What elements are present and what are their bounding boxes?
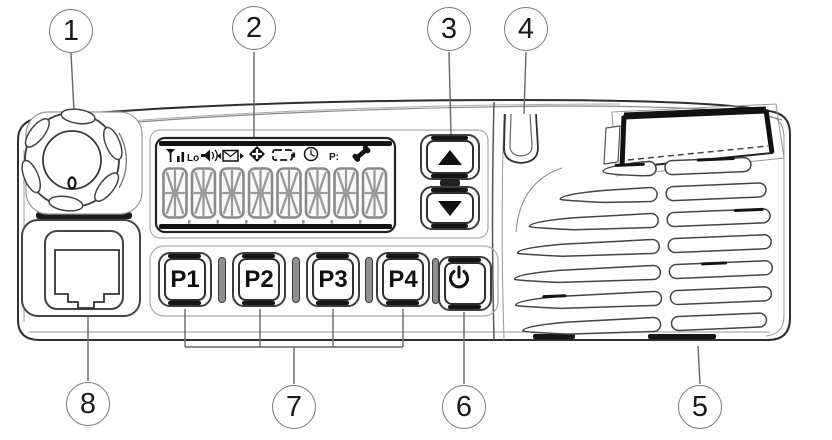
callout-2-number: 2 [246,12,262,45]
callout-3: 3 [427,7,471,51]
callout-3-number: 3 [441,13,457,46]
callout-1-number: 1 [63,15,79,48]
callout-2: 2 [232,6,276,50]
p4-button[interactable]: P4 [376,252,430,307]
channel-volume-knob[interactable] [18,107,142,214]
p1-button[interactable]: P1 [158,252,212,307]
channel-up-button[interactable] [420,134,480,180]
button-separator [365,257,373,303]
callout-6: 6 [442,385,486,429]
triangle-down-icon [438,201,462,216]
callout-4-number: 4 [518,13,534,46]
callout-7: 7 [272,385,316,429]
microphone-jack[interactable] [22,220,140,316]
channel-down-button[interactable] [420,186,480,230]
low-power-label: Lo [187,153,199,164]
power-icon [446,264,472,290]
power-button[interactable] [438,256,492,311]
callout-7-number: 7 [286,391,302,424]
callout-8-number: 8 [80,388,96,421]
priority-label: P: [329,152,339,163]
callout-5-number: 5 [692,391,708,424]
lcd-display: Lo [156,138,395,232]
radio-line-art: Lo [0,0,832,440]
p2-button[interactable]: P2 [232,252,286,307]
callout-5: 5 [678,385,722,429]
led-indicator [504,114,538,163]
p3-button-label: P3 [312,258,354,301]
button-separator [292,257,300,303]
callout-8: 8 [66,382,110,426]
radio-front-panel-diagram: Lo [0,0,832,440]
triangle-up-icon [438,150,462,165]
p1-button-label: P1 [164,258,206,301]
button-separator [218,257,226,303]
p3-button[interactable]: P3 [306,252,360,307]
callout-6-number: 6 [456,391,472,424]
callout-1: 1 [49,9,93,53]
p2-button-label: P2 [238,258,280,301]
callout-4: 4 [504,7,548,51]
p4-button-label: P4 [382,258,424,301]
